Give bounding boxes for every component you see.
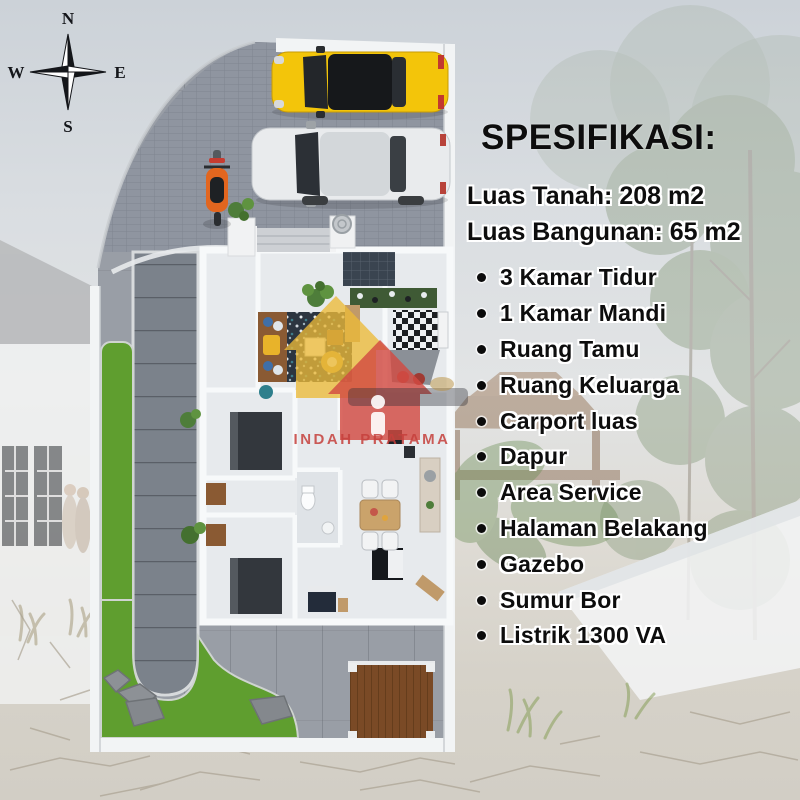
bullet-icon [477, 273, 486, 282]
feature-label: Sumur Bor [500, 587, 621, 614]
feature-item: Ruang Keluarga [477, 367, 797, 403]
white-car [252, 121, 450, 207]
feature-list: 3 Kamar Tidur1 Kamar MandiRuang TamuRuan… [477, 260, 797, 654]
compass-west-label: W [8, 63, 25, 82]
well-cover [333, 215, 351, 233]
bullet-icon [477, 488, 486, 497]
yellow-car [272, 46, 448, 118]
feature-label: Area Service [500, 479, 642, 506]
feature-item: Dapur [477, 439, 797, 475]
land-area-text: Luas Tanah: 208 m2 [467, 182, 704, 211]
bathroom [297, 472, 338, 543]
bullet-icon [477, 524, 486, 533]
feature-label: Dapur [500, 443, 567, 470]
feature-item: Carport luas [477, 403, 797, 439]
wall-bottom [90, 738, 455, 752]
planter-box-2 [330, 215, 355, 248]
feature-label: Listrik 1300 VA [500, 622, 666, 649]
illegible-watermark [348, 388, 468, 406]
feature-item: Listrik 1300 VA [477, 618, 797, 654]
bullet-icon [477, 309, 486, 318]
feature-item: Gazebo [477, 546, 797, 582]
bullet-icon [477, 345, 486, 354]
gazebo-deck [348, 661, 435, 740]
feature-item: 3 Kamar Tidur [477, 260, 797, 296]
garden-path [133, 252, 198, 695]
lawn-left-strip [101, 342, 133, 612]
spec-title: SPESIFIKASI: [481, 118, 800, 158]
compass-rose: N S W E [0, 0, 140, 145]
canopy-tiles [343, 252, 395, 286]
feature-item: Ruang Tamu [477, 332, 797, 368]
feature-item: 1 Kamar Mandi [477, 296, 797, 332]
feature-label: 3 Kamar Tidur [500, 264, 657, 291]
feature-label: Ruang Keluarga [500, 372, 679, 399]
feature-label: Carport luas [500, 408, 638, 435]
feature-item: Area Service [477, 475, 797, 511]
feature-item: Halaman Belakang [477, 511, 797, 547]
terrace-steps [251, 226, 336, 252]
compass-south-label: S [63, 117, 72, 136]
bullet-icon [477, 631, 486, 640]
planter-box-1 [228, 198, 255, 256]
compass-north-label: N [62, 9, 75, 28]
feature-item: Sumur Bor [477, 582, 797, 618]
spec-panel: SPESIFIKASI: Luas Tanah: 208 m2 Luas Ban… [455, 118, 800, 158]
building-area-text: Luas Bangunan: 65 m2 [467, 218, 741, 247]
feature-label: Gazebo [500, 551, 584, 578]
feature-label: Halaman Belakang [500, 515, 708, 542]
watermark-brand-text: INDAH PRATAMA [294, 431, 451, 448]
feature-label: 1 Kamar Mandi [500, 300, 666, 327]
feature-label: Ruang Tamu [500, 336, 640, 363]
property-flyer: INDAH PRATAMA N S W E SPESIFIKASI: Luas … [0, 0, 800, 800]
bullet-icon [477, 381, 486, 390]
compass-east-label: E [114, 63, 125, 82]
bullet-icon [477, 560, 486, 569]
bullet-icon [477, 417, 486, 426]
planter-strip [350, 288, 437, 308]
bullet-icon [477, 452, 486, 461]
wall-left [90, 286, 100, 752]
bullet-icon [477, 596, 486, 605]
